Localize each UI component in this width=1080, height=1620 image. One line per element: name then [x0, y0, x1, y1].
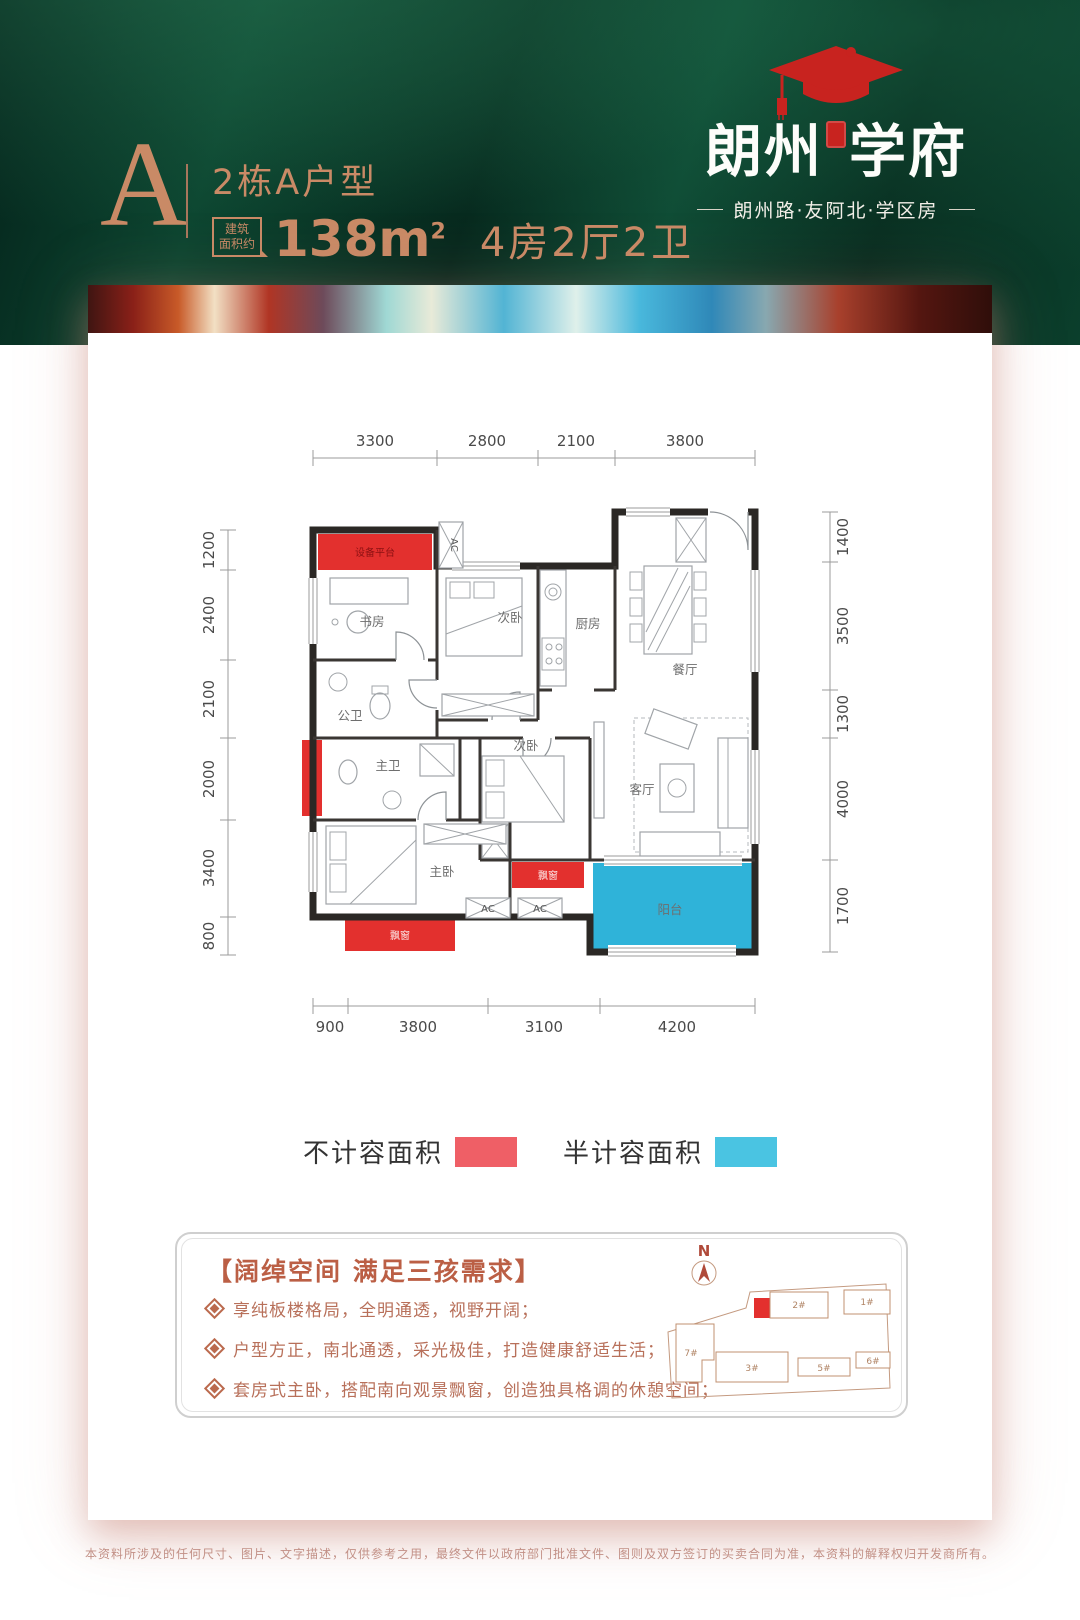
ac-label-1: AC: [481, 904, 495, 915]
feature-bullet-text: 享纯板楼格局，全明通透，视野开阔；: [233, 1296, 539, 1321]
area-tag-line2: 面积约: [219, 237, 255, 252]
dimensions-bottom: 900 3800 3100 4200: [313, 998, 755, 1036]
area-row: 建筑 面积约 138m2 4房2厅2卫: [212, 217, 694, 262]
abstract-art-strip: [88, 285, 992, 333]
dim-bottom-1: 3800: [399, 1018, 437, 1036]
legend-label-half-count: 半计容面积: [563, 1133, 703, 1170]
dim-right-1: 3500: [834, 607, 852, 645]
room-label-dining: 餐厅: [672, 662, 697, 677]
tagline-rule-right: [949, 209, 975, 210]
dim-top-1: 2800: [468, 432, 506, 450]
dim-left-1: 2400: [200, 596, 218, 634]
legend-swatch-red: [455, 1137, 517, 1167]
area-value: 138m2: [274, 217, 446, 262]
feature-bullet: 套房式主卧，搭配南向观景飘窗，创造独具格调的休憩空间；: [207, 1376, 719, 1401]
dim-bottom-0: 900: [316, 1018, 345, 1036]
dimensions-right: 1400 3500 1300 4000 1700: [822, 512, 852, 952]
legend-label-no-count: 不计容面积: [303, 1133, 443, 1170]
tagline-text: 朗州路·友阿北·学区房: [733, 196, 938, 223]
brand-block: 朗州 学府 朗州路·友阿北·学区房: [693, 36, 979, 223]
feature-title: 【阔绰空间 满足三孩需求】: [207, 1252, 542, 1288]
diamond-icon: [204, 1298, 225, 1319]
feature-bullet: 享纯板楼格局，全明通透，视野开阔；: [207, 1296, 719, 1321]
diamond-icon: [204, 1338, 225, 1359]
feature-bullet-text: 套房式主卧，搭配南向观景飘窗，创造独具格调的休憩空间；: [233, 1376, 719, 1401]
building-label-5: 5#: [817, 1364, 830, 1374]
legend-item-half-count: 半计容面积: [563, 1133, 777, 1170]
dim-left-5: 800: [200, 922, 218, 951]
building-label-3: 3#: [745, 1364, 758, 1374]
room-label-bay1: 飘窗: [538, 869, 558, 882]
dim-right-0: 1400: [834, 518, 852, 556]
header-divider: [186, 164, 188, 238]
ac-label-2: AC: [533, 904, 547, 915]
dim-left-0: 1200: [200, 531, 218, 569]
legend-item-no-count: 不计容面积: [303, 1133, 517, 1170]
flyer-page: A 2栋A户型 建筑 面积约 138m2 4房2厅2卫 朗州 学府: [0, 0, 1080, 1620]
building-label-7: 7#: [684, 1349, 697, 1359]
dim-right-3: 4000: [834, 780, 852, 818]
room-label-study: 书房: [359, 614, 384, 629]
ac-label-top: AC: [448, 538, 459, 552]
room-label-master-bath: 主卫: [375, 758, 400, 773]
room-label-bedroom3: 次卧: [513, 738, 538, 753]
area-tag: 建筑 面积约: [212, 217, 262, 257]
dim-right-4: 1700: [834, 887, 852, 925]
dim-bottom-3: 4200: [658, 1018, 696, 1036]
dim-top-2: 2100: [557, 432, 595, 450]
dim-right-2: 1300: [834, 695, 852, 733]
brand-name: 朗州 学府: [693, 124, 979, 181]
dim-top-3: 3800: [666, 432, 704, 450]
brand-name-right: 学府: [849, 124, 967, 181]
feature-bullet-text: 户型方正，南北通透，采光极佳，打造健康舒适生活；: [233, 1336, 665, 1361]
compass-needle: [698, 1263, 710, 1282]
brand-tagline: 朗州路·友阿北·学区房: [693, 196, 979, 223]
site-map: N 2# 1# 7# 3# 5# 6#: [658, 1240, 894, 1408]
room-label-living: 客厅: [629, 782, 654, 797]
area-tag-line1: 建筑: [219, 222, 255, 237]
feature-bullet: 户型方正，南北通透，采光极佳，打造健康舒适生活；: [207, 1336, 719, 1361]
legend: 不计容面积 半计容面积: [88, 1133, 992, 1170]
unit-title: 2栋A户型: [212, 154, 694, 205]
dim-left-3: 2000: [200, 760, 218, 798]
area-number: 138m: [274, 210, 430, 268]
brand-name-left: 朗州: [705, 124, 823, 181]
dim-left-2: 2100: [200, 680, 218, 718]
room-label-bedroom2: 次卧: [497, 610, 522, 625]
building-label-2: 2#: [792, 1301, 805, 1311]
legend-swatch-cyan: [715, 1137, 777, 1167]
brand-seal-icon: [826, 121, 846, 148]
dim-top-0: 3300: [356, 432, 394, 450]
graduation-cap-icon: [751, 36, 921, 124]
disclaimer-text: 本资料所涉及的任何尺寸、图片、文字描述，仅供参考之用，最终文件以政府部门批准文件…: [0, 1545, 1080, 1562]
unit-info-block: 2栋A户型 建筑 面积约 138m2 4房2厅2卫: [212, 154, 694, 262]
highlighted-building: [754, 1298, 770, 1318]
room-label-bay2: 飘窗: [390, 929, 410, 942]
tagline-rule-left: [697, 209, 723, 210]
layout-text: 4房2厅2卫: [480, 224, 694, 262]
north-label: N: [698, 1242, 711, 1260]
building-label-6: 6#: [866, 1357, 879, 1367]
room-label-master: 主卧: [429, 864, 454, 879]
feature-bullets: 享纯板楼格局，全明通透，视野开阔； 户型方正，南北通透，采光极佳，打造健康舒适生…: [207, 1296, 719, 1401]
area-sup: 2: [431, 219, 446, 244]
room-label-kitchen: 厨房: [575, 616, 600, 631]
room-label-balcony: 阳台: [657, 902, 682, 917]
dimensions-left: 1200 2400 2100 2000 3400 800: [200, 530, 236, 955]
floor-plan: AC AC AC: [180, 420, 900, 1040]
unit-letter: A: [100, 124, 188, 246]
content-card: AC AC AC: [88, 285, 992, 1520]
diamond-icon: [204, 1378, 225, 1399]
room-label-platform: 设备平台: [355, 546, 395, 559]
building-label-1: 1#: [860, 1298, 873, 1308]
dimensions-top: 3300 2800 2100 3800: [313, 432, 755, 466]
room-label-guest-bath: 公卫: [337, 708, 362, 723]
dim-bottom-2: 3100: [525, 1018, 563, 1036]
dim-left-4: 3400: [200, 849, 218, 887]
feature-box: 【阔绰空间 满足三孩需求】 享纯板楼格局，全明通透，视野开阔； 户型方正，南北通…: [175, 1232, 908, 1418]
